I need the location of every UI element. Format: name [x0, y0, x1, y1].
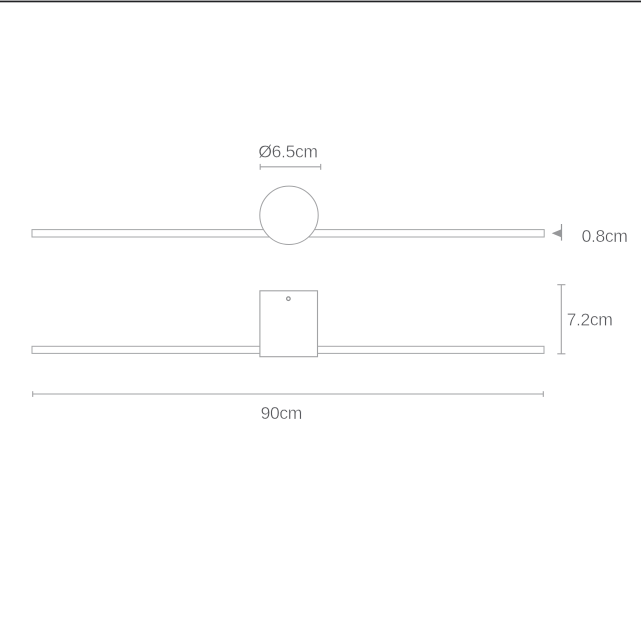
- svg-text:Ø6.5cm: Ø6.5cm: [258, 142, 317, 162]
- svg-text:90cm: 90cm: [261, 403, 302, 423]
- svg-text:0.8cm: 0.8cm: [582, 226, 628, 246]
- svg-text:7.2cm: 7.2cm: [567, 310, 613, 330]
